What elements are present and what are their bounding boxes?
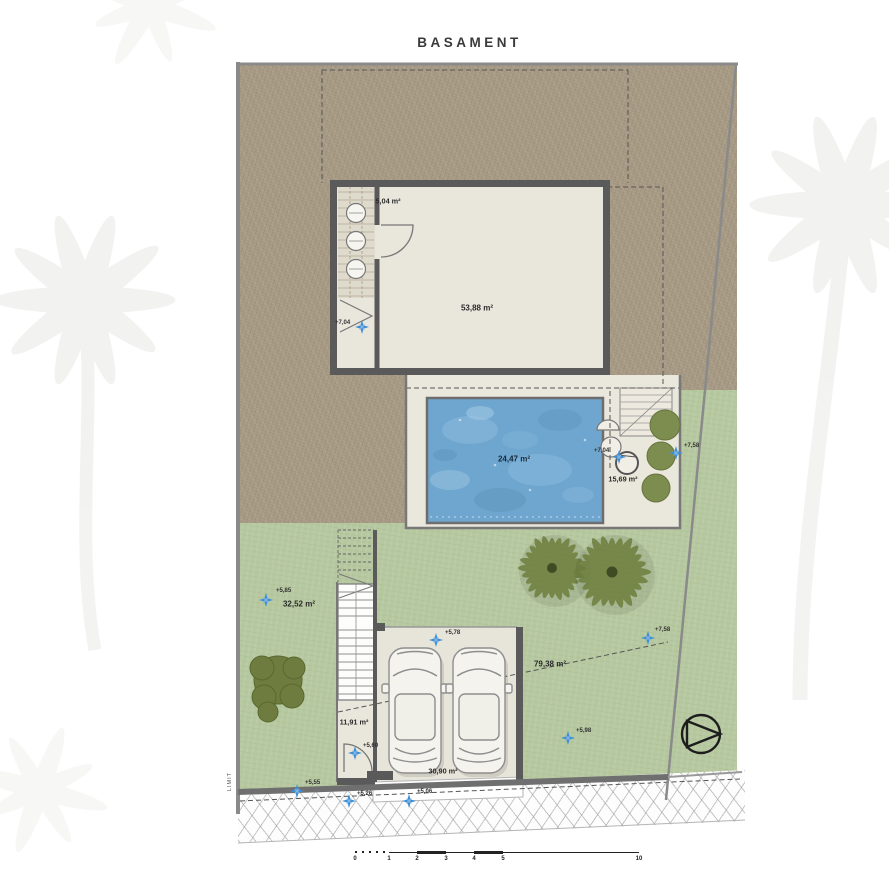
level-marker-icon: [560, 730, 576, 746]
area-label-entry: 11,91 m²: [340, 718, 369, 727]
level-label: +7,58: [684, 443, 699, 449]
scale-label: 0: [353, 856, 356, 862]
level-marker-icon: [354, 319, 370, 335]
level-label: +5,26: [357, 791, 372, 797]
boundary-limit-label: LIMIT: [227, 772, 233, 791]
area-label-lawn-left: 32,52 m²: [283, 600, 315, 609]
area-label-services: 5,04 m²: [375, 197, 400, 206]
level-marker-icon: [347, 745, 363, 761]
car-icon: [446, 648, 512, 777]
level-label: +7,58: [655, 627, 670, 633]
level-marker-icon: [341, 793, 357, 809]
level-marker-icon: [640, 630, 656, 646]
area-label-lawn-right: 79,38 m²: [534, 660, 566, 669]
scale-label: 2: [415, 856, 418, 862]
scale-label: 10: [636, 856, 643, 862]
level-marker-icon: [289, 783, 305, 799]
tree-icon: [250, 656, 305, 722]
level-marker-icon: [258, 592, 274, 608]
scale-bar: 0 1 2 3 4 5 10: [355, 849, 647, 865]
scale-bar-segment: [446, 852, 474, 853]
area-label-basement: 53,88 m²: [461, 304, 493, 313]
level-label: +7,04: [335, 320, 350, 326]
north-arrow-icon: [682, 715, 720, 753]
scale-bar-segment: [417, 851, 446, 854]
scale-bar-segment: [503, 852, 639, 853]
area-label-garage: 30,90 m²: [428, 767, 457, 776]
site-plan-drawing: [0, 0, 889, 895]
scale-label: 5: [501, 856, 504, 862]
level-label: +5,60: [363, 743, 378, 749]
level-label: +7,04: [594, 448, 609, 454]
level-label: +5,98: [576, 728, 591, 734]
level-label: +5,06: [417, 789, 432, 795]
level-label: +5,85: [276, 588, 291, 594]
level-marker-icon: [401, 793, 417, 809]
car-icon: [382, 648, 448, 777]
scale-bar-segment: [474, 851, 503, 854]
scale-label: 1: [387, 856, 390, 862]
area-label-pool: 24,47 m²: [498, 455, 530, 464]
level-label: +5,78: [445, 630, 460, 636]
page-title: BASAMENT: [25, 35, 889, 50]
level-marker-icon: [428, 632, 444, 648]
level-marker-icon: [668, 445, 684, 461]
level-marker-icon: [611, 449, 627, 465]
scale-bar-segment: [389, 852, 417, 853]
level-label: +5,55: [305, 780, 320, 786]
scale-bar-dotted-segment: [355, 851, 389, 853]
palm-tree-icon: [573, 535, 655, 615]
area-label-deck: 15,69 m²: [608, 475, 637, 484]
scale-label: 4: [472, 856, 475, 862]
scale-label: 3: [444, 856, 447, 862]
plan-sheet: BASAMENT 5,04 m² 53,88 m² 24,47 m² 15,69…: [0, 0, 889, 895]
